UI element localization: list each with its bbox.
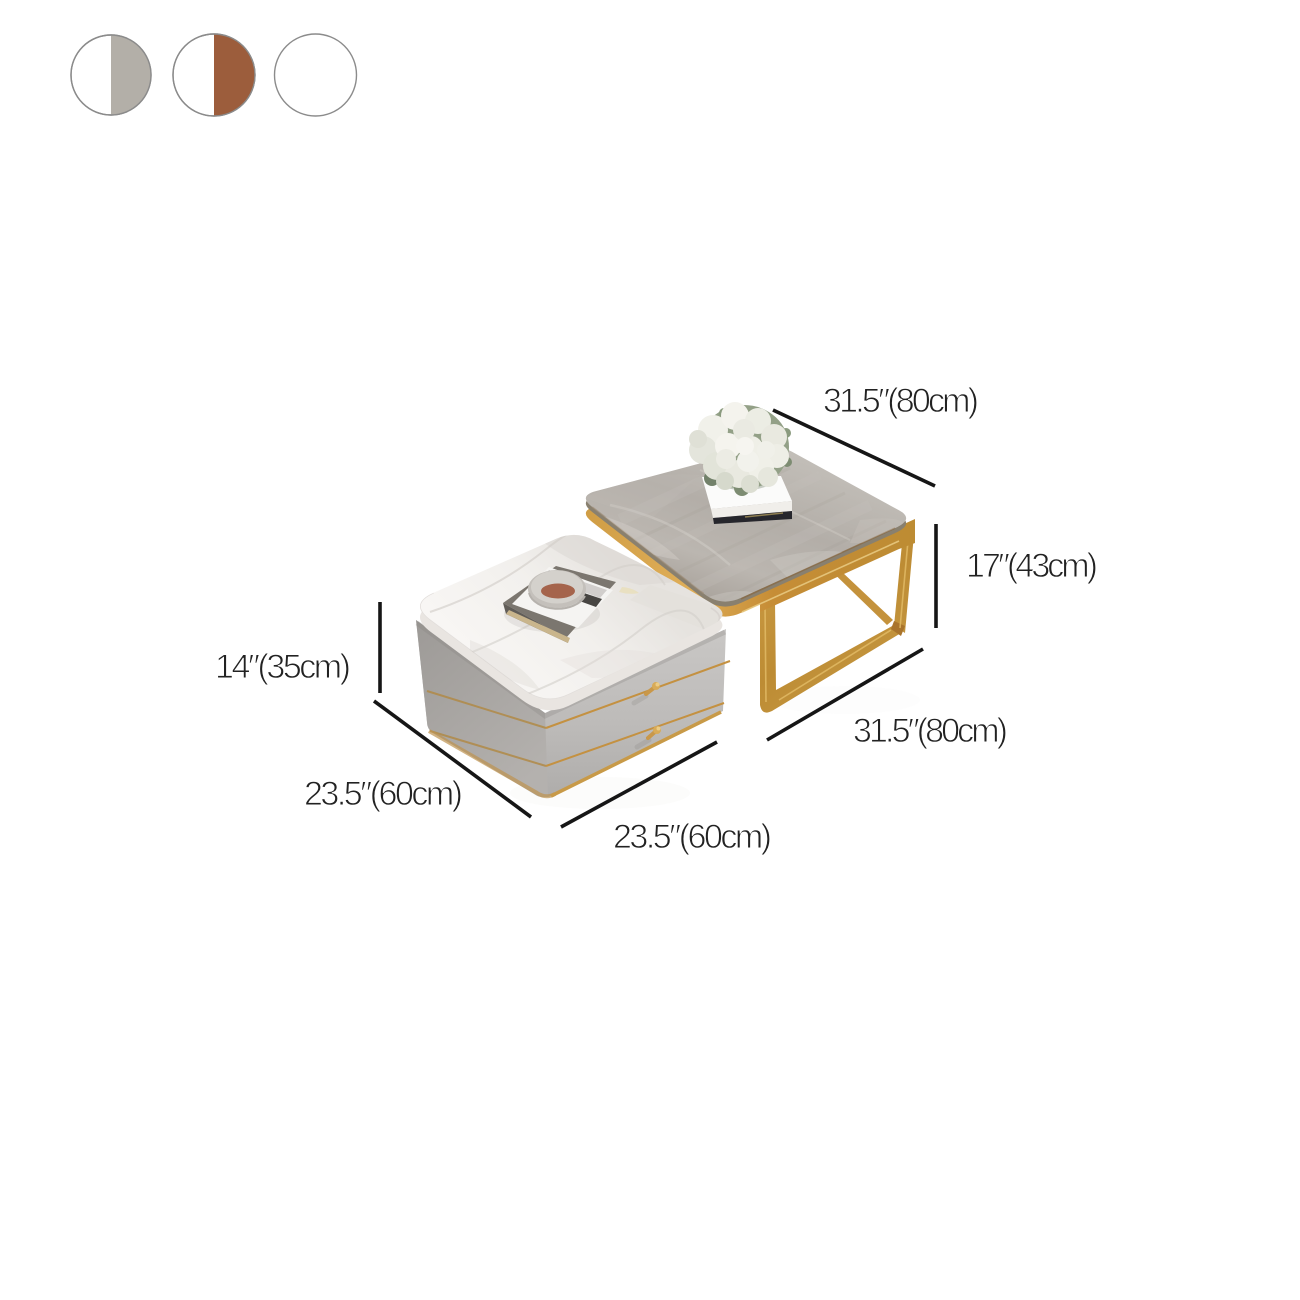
svg-text:31.5″(80cm): 31.5″(80cm) bbox=[853, 712, 1008, 750]
svg-text:14″(35cm): 14″(35cm) bbox=[215, 648, 351, 686]
svg-text:23.5″(60cm): 23.5″(60cm) bbox=[613, 818, 772, 856]
svg-text:31.5″(80cm): 31.5″(80cm) bbox=[823, 382, 979, 420]
svg-text:17″(43cm): 17″(43cm) bbox=[966, 547, 1098, 585]
svg-text:23.5″(60cm): 23.5″(60cm) bbox=[304, 775, 463, 813]
